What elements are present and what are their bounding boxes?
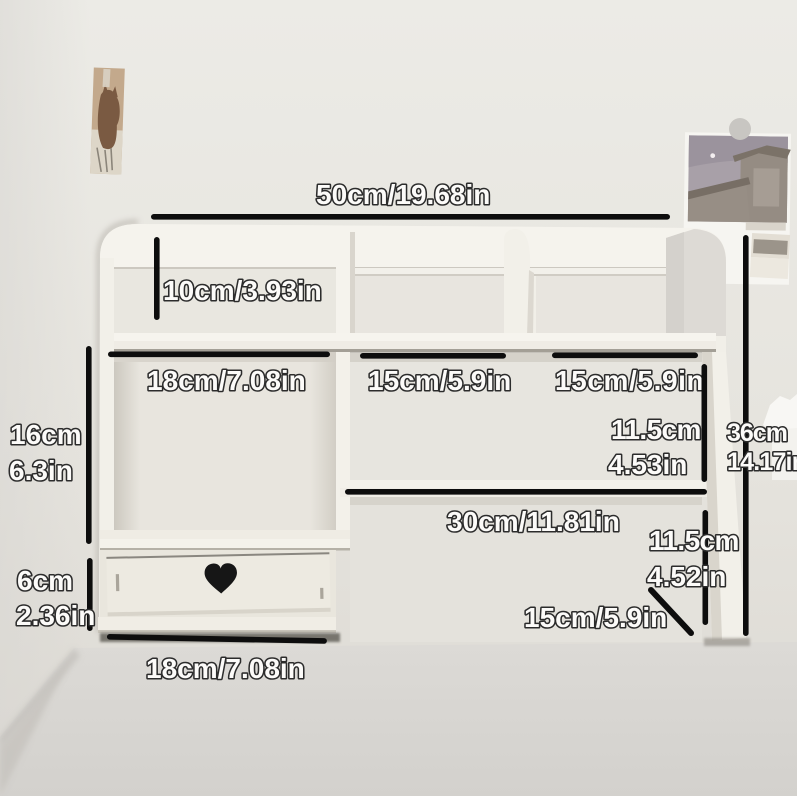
svg-text:4.52in: 4.52in bbox=[647, 561, 726, 592]
svg-text:15cm/5.9in: 15cm/5.9in bbox=[368, 365, 511, 396]
svg-text:4.53in: 4.53in bbox=[608, 449, 687, 480]
svg-text:11.5cm: 11.5cm bbox=[649, 525, 739, 556]
svg-text:14.17in: 14.17in bbox=[727, 448, 797, 476]
svg-text:6.3in: 6.3in bbox=[9, 455, 73, 486]
svg-text:16cm: 16cm bbox=[10, 419, 82, 450]
svg-text:18cm/7.08in: 18cm/7.08in bbox=[146, 653, 305, 684]
svg-text:2.36in: 2.36in bbox=[16, 600, 95, 631]
svg-text:6cm: 6cm bbox=[17, 565, 73, 596]
svg-text:30cm/11.81in: 30cm/11.81in bbox=[447, 506, 620, 537]
svg-text:50cm/19.68in: 50cm/19.68in bbox=[316, 179, 490, 210]
svg-text:15cm/5.9in: 15cm/5.9in bbox=[555, 365, 704, 396]
svg-text:36cm: 36cm bbox=[727, 419, 787, 447]
svg-text:10cm/3.93in: 10cm/3.93in bbox=[163, 275, 322, 306]
svg-text:15cm/5.9in: 15cm/5.9in bbox=[524, 602, 667, 633]
svg-text:11.5cm: 11.5cm bbox=[611, 414, 701, 445]
svg-text:18cm/7.08in: 18cm/7.08in bbox=[147, 365, 306, 396]
